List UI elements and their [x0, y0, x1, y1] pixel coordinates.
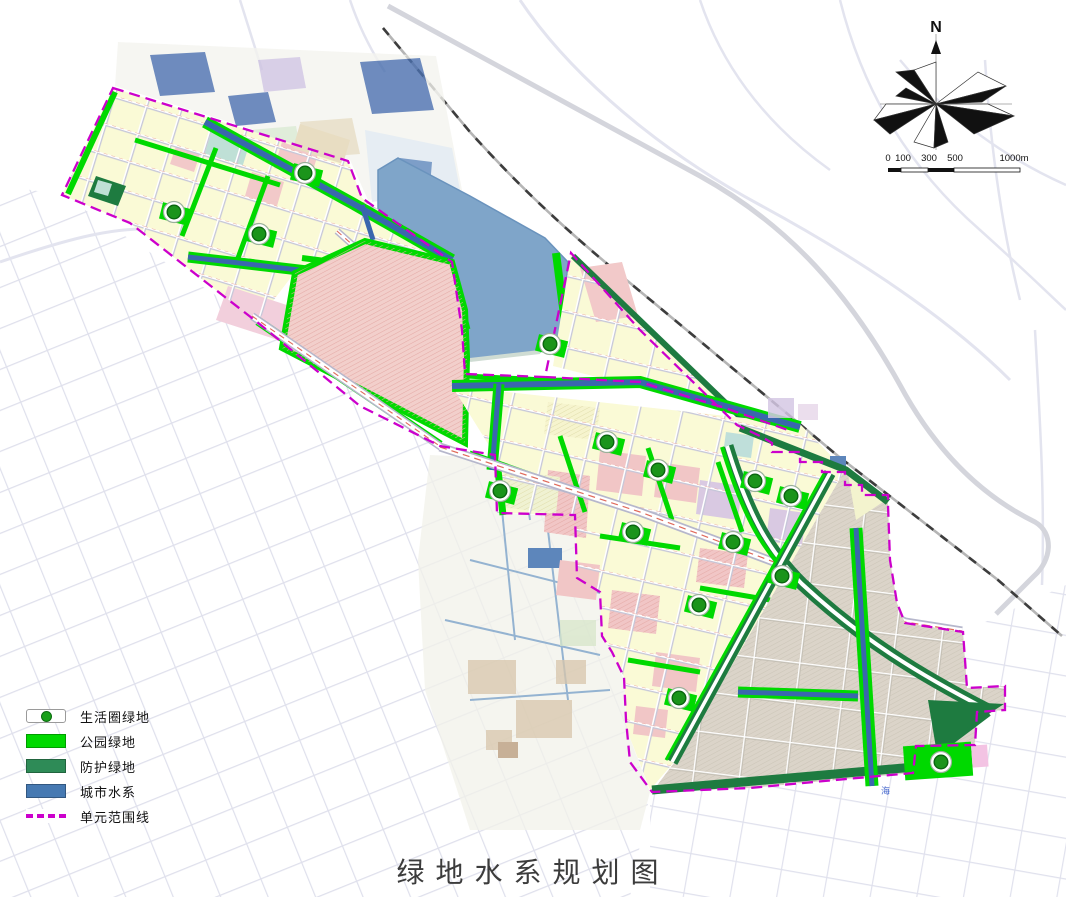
legend-item-0: 生活圈绿地	[26, 708, 150, 724]
scale-label-300: 300	[921, 153, 937, 164]
legend-item-label: 公园绿地	[80, 732, 136, 751]
legend-swatch-marker-icon	[26, 709, 66, 723]
legend-item-label: 生活圈绿地	[80, 707, 150, 726]
legend-item-label: 城市水系	[80, 782, 136, 801]
legend-item-label: 单元范围线	[80, 807, 150, 826]
legend-item-label: 防护绿地	[80, 757, 136, 776]
legend-swatch-fill-icon	[26, 759, 66, 773]
planning-map-canvas: 海 N 0 100 300 500 1000m	[0, 0, 1066, 897]
green-dot-icon	[41, 711, 52, 722]
legend-item-1: 公园绿地	[26, 733, 150, 749]
ne-lavender-blocks	[768, 398, 818, 420]
north-label: N	[930, 19, 942, 36]
scale-label-500: 500	[947, 153, 963, 164]
legend-swatch-fill-icon	[26, 734, 66, 748]
scale-label-1000m: 1000m	[999, 153, 1028, 164]
legend-swatch-fill-icon	[26, 784, 66, 798]
legend-item-3: 城市水系	[26, 783, 150, 799]
wind-rose-icon	[874, 62, 1014, 148]
scale-label-100: 100	[895, 153, 911, 164]
river-name-label: 海	[881, 785, 890, 796]
magenta-dash-icon	[26, 814, 66, 818]
compass: N	[874, 19, 1014, 150]
legend-item-2: 防护绿地	[26, 758, 150, 774]
legend-swatch-dashed-line-icon	[26, 809, 66, 823]
north-arrow-icon	[931, 40, 941, 54]
plan-map-page: 海 N 0 100 300 500 1000m	[0, 0, 1066, 897]
map-title: 绿地水系规划图	[0, 851, 1066, 891]
river-labels-layer: 海	[881, 785, 890, 796]
scale-bar: 0 100 300 500 1000m	[885, 153, 1028, 172]
legend: 生活圈绿地公园绿地防护绿地城市水系单元范围线	[26, 708, 150, 824]
legend-item-4: 单元范围线	[26, 808, 150, 824]
scale-label-0: 0	[885, 153, 890, 164]
